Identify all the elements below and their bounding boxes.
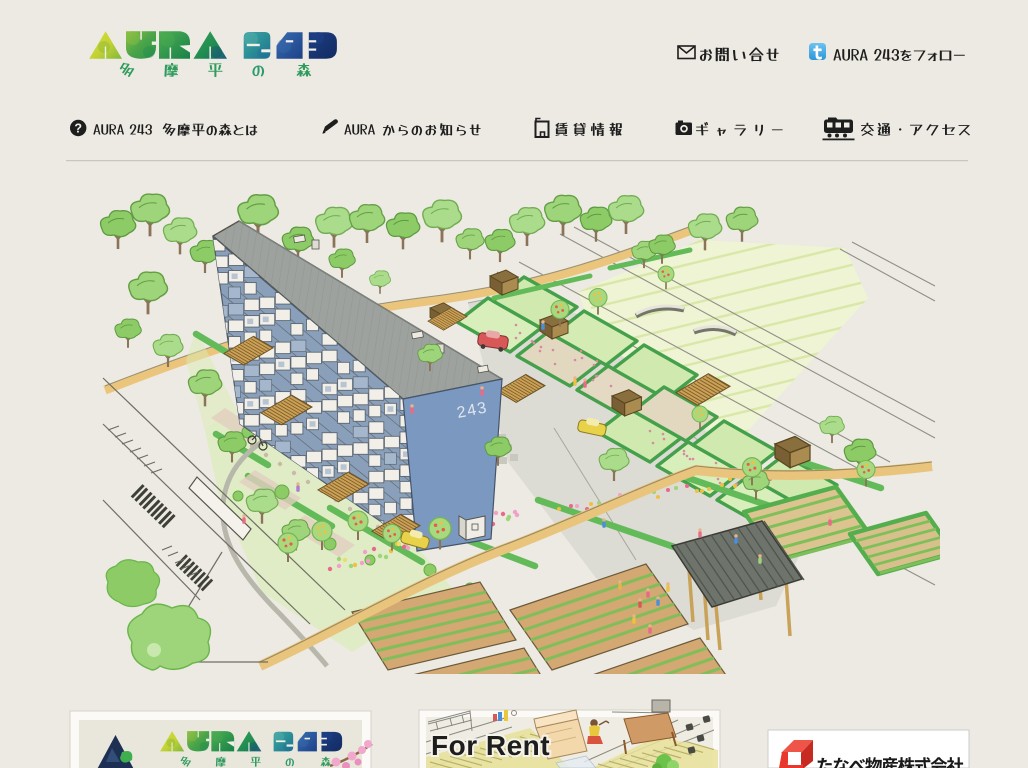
svg-text:?: ? — [74, 122, 82, 136]
svg-text:For Rent: For Rent — [431, 730, 550, 761]
